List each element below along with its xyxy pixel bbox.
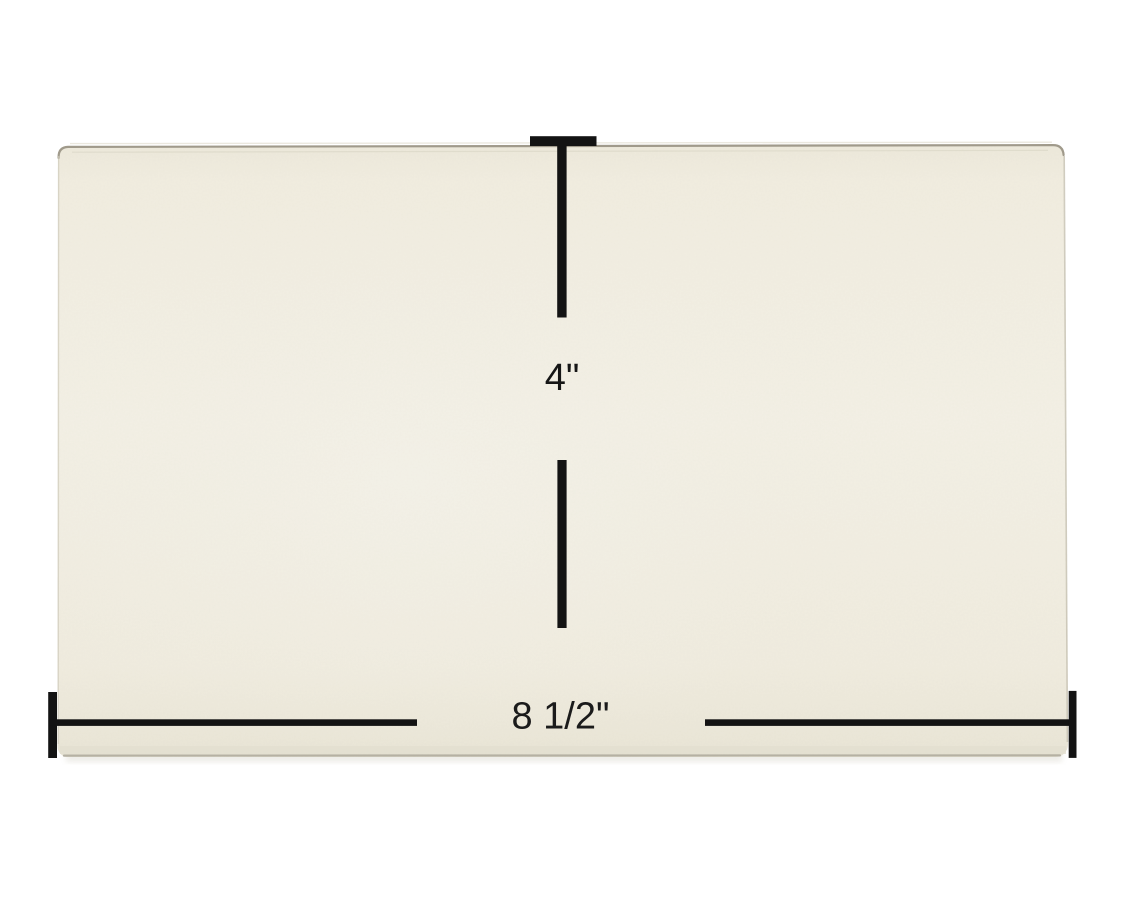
svg-text:8 1/2": 8 1/2": [511, 696, 609, 738]
svg-text:4": 4": [545, 357, 580, 399]
